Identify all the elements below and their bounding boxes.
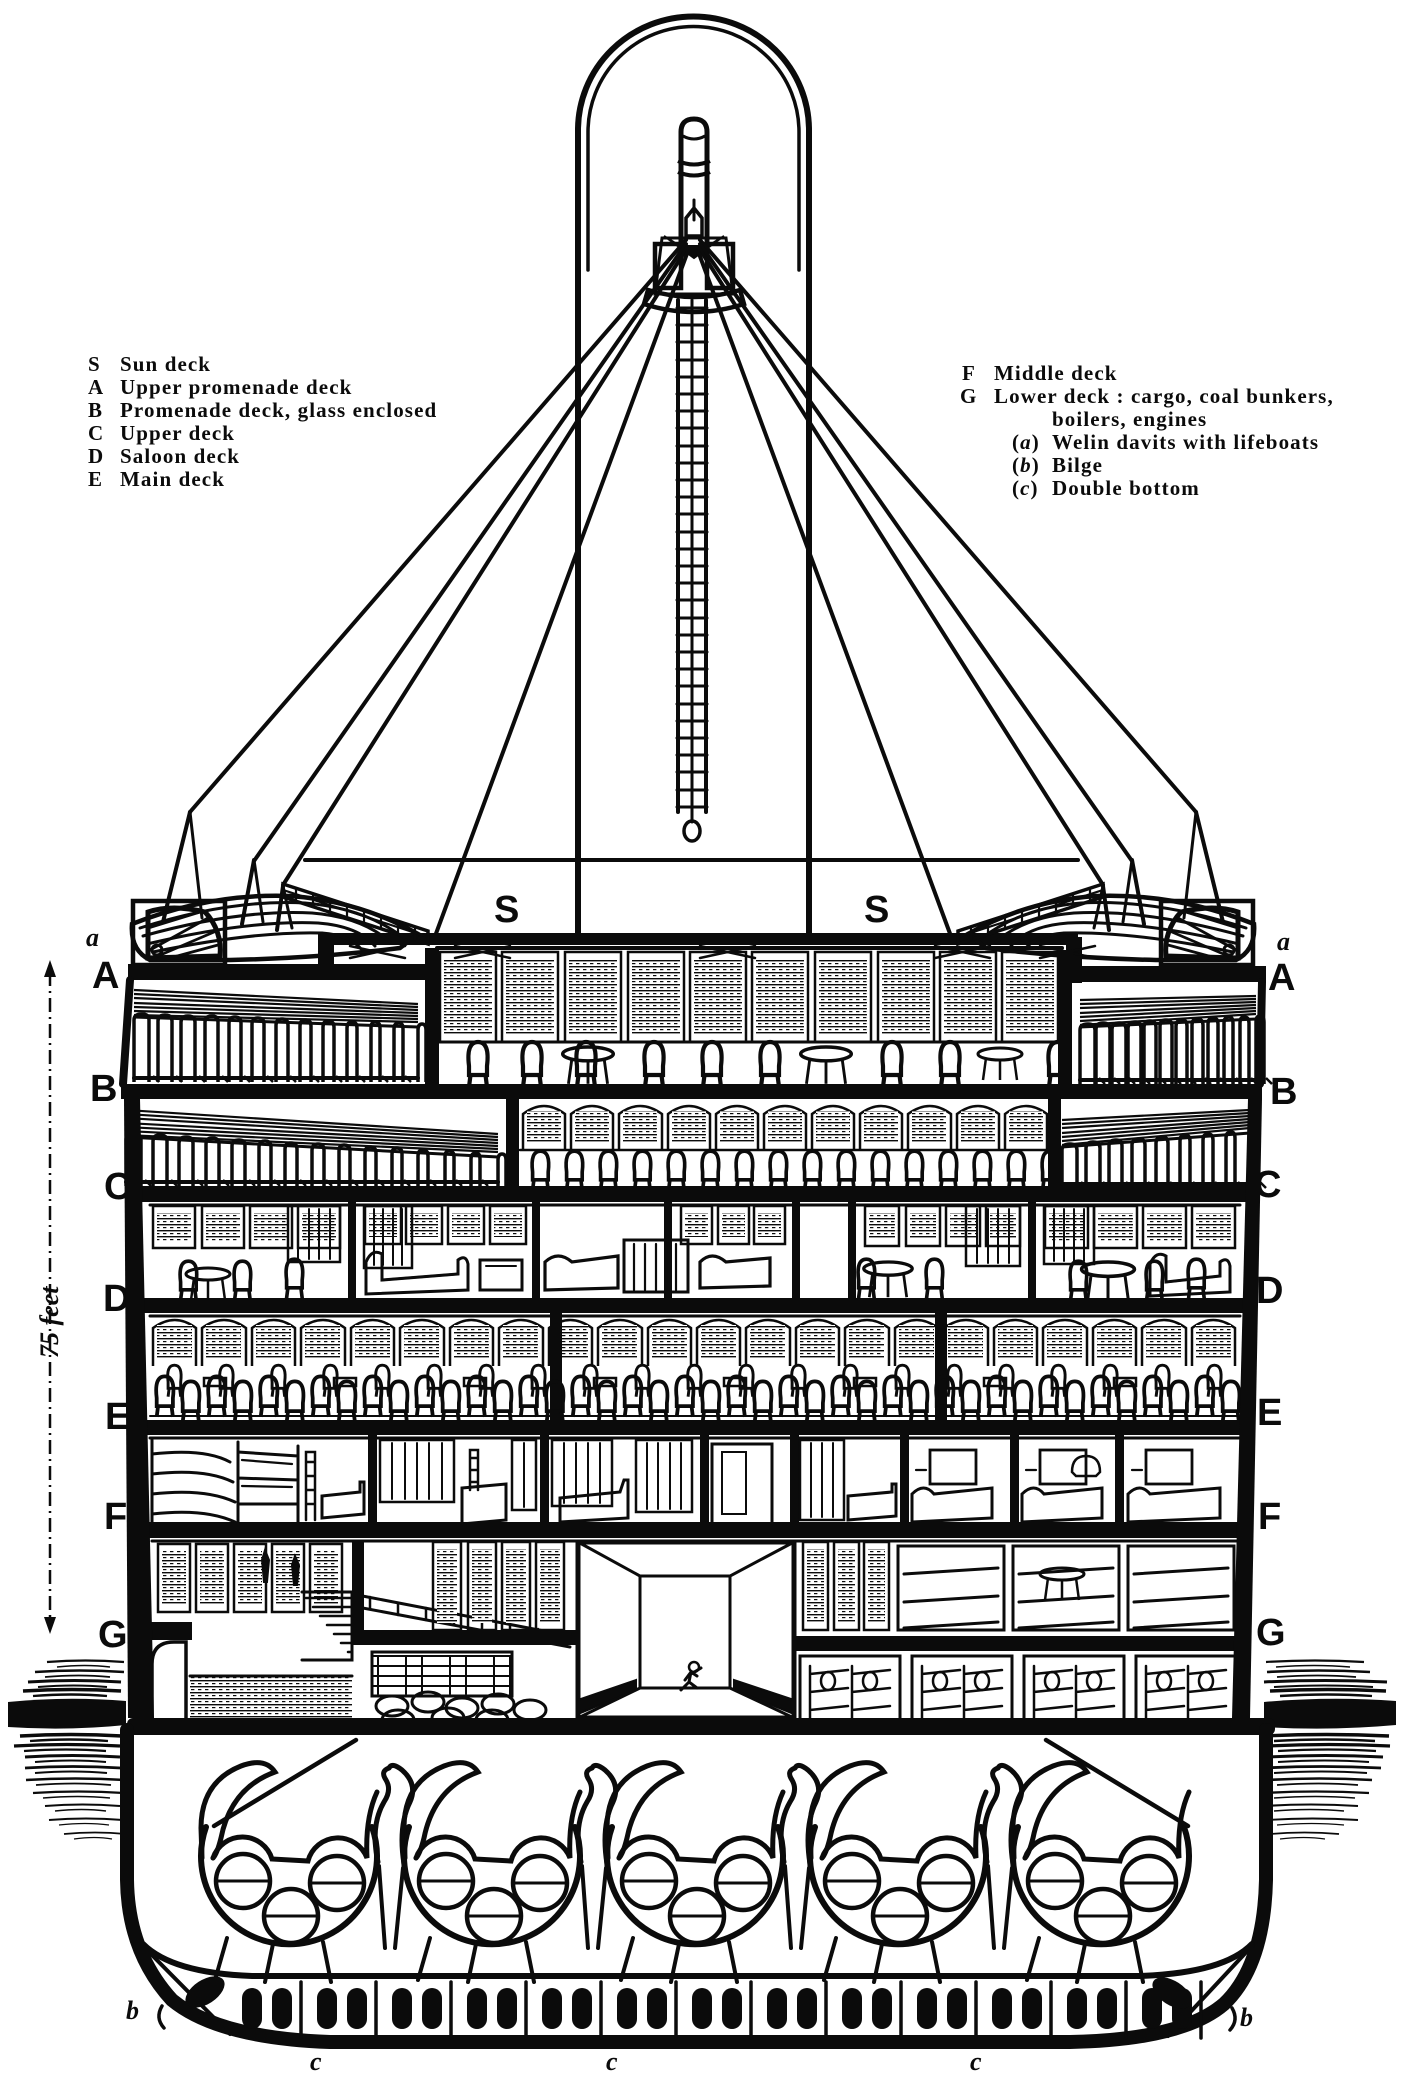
svg-text:(b): (b) [1012, 453, 1040, 477]
svg-text:boilers, engines: boilers, engines [1052, 407, 1207, 431]
svg-text:S: S [864, 889, 889, 931]
svg-text:G: G [1256, 1612, 1286, 1654]
svg-text:S: S [88, 352, 101, 376]
svg-text:C: C [88, 421, 104, 445]
svg-text:Lower deck : cargo, coal bunke: Lower deck : cargo, coal bunkers, [994, 384, 1334, 408]
svg-text:b: b [1240, 2003, 1253, 2032]
svg-text:Double bottom: Double bottom [1052, 476, 1200, 500]
svg-text:Upper deck: Upper deck [120, 421, 235, 445]
svg-text:Sun deck: Sun deck [120, 352, 211, 376]
svg-text:D: D [88, 444, 104, 468]
svg-text:F: F [1258, 1496, 1281, 1538]
svg-text:c: c [606, 2047, 618, 2076]
svg-text:A: A [1268, 957, 1295, 999]
svg-text:Promenade deck, glass enclosed: Promenade deck, glass enclosed [120, 398, 437, 422]
svg-text:E: E [1257, 1392, 1282, 1434]
svg-text:Upper promenade deck: Upper promenade deck [120, 375, 352, 399]
svg-text:B: B [88, 398, 103, 422]
svg-text:b: b [126, 1996, 139, 2025]
svg-text:Main deck: Main deck [120, 467, 225, 491]
svg-text:E: E [88, 467, 103, 491]
svg-text:Bilge: Bilge [1052, 453, 1103, 477]
svg-text:Saloon deck: Saloon deck [120, 444, 240, 468]
svg-text:a: a [86, 923, 99, 952]
svg-text:a: a [1277, 927, 1290, 956]
svg-text:c: c [310, 2047, 322, 2076]
svg-text:c: c [970, 2047, 982, 2076]
svg-text:G: G [98, 1614, 128, 1656]
svg-text:A: A [92, 955, 119, 997]
svg-text:(c): (c) [1012, 476, 1039, 500]
svg-text:Welin davits with lifeboats: Welin davits with lifeboats [1052, 430, 1319, 454]
svg-text:75 feet: 75 feet [35, 1286, 64, 1358]
svg-text:A: A [88, 375, 104, 399]
svg-text:S: S [494, 889, 519, 931]
svg-text:B: B [90, 1068, 117, 1110]
svg-text:F: F [962, 361, 976, 385]
svg-text:D: D [1256, 1270, 1283, 1312]
svg-text:F: F [104, 1496, 127, 1538]
svg-text:Middle deck: Middle deck [994, 361, 1118, 385]
svg-text:(a): (a) [1012, 430, 1040, 454]
svg-text:G: G [960, 384, 977, 408]
svg-text:B: B [1270, 1071, 1297, 1113]
